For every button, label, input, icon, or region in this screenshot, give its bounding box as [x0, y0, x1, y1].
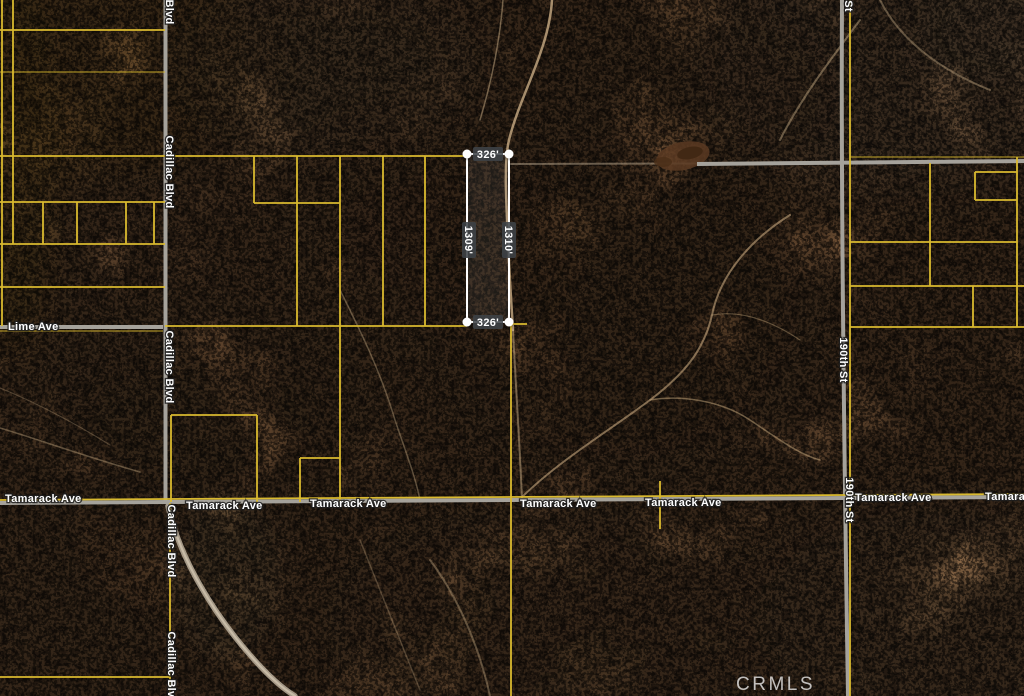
road-label-cadillac-blvd: Cadillac Blvd: [163, 331, 175, 404]
road-label-tamarack-ave: Tamarack Ave: [5, 493, 82, 505]
crmls-watermark: CRMLS: [736, 674, 815, 695]
road-label-tamarack-ave: Tamarack Ave: [186, 500, 263, 512]
dimension-value-right: 1310': [502, 226, 514, 255]
road-label-tamarack-ave: Tamarack Ave: [520, 498, 597, 510]
dimension-value-top: 326': [477, 149, 499, 161]
parcel-corner-handle[interactable]: [505, 150, 514, 159]
road-label-190th-st: 190th St: [843, 477, 855, 522]
road-label-190th-st: 190th St: [837, 337, 849, 382]
road-label-cadillac-blvd: Cadillac Blvd: [163, 136, 175, 209]
dimension-label-right: 1310': [502, 222, 516, 258]
dimension-label-left: 1309': [462, 222, 476, 258]
road-label-tamarack-ave: Tamarack Ave: [855, 492, 932, 504]
dimension-value-left: 1309': [462, 226, 474, 255]
road-label-cadillac-blvd: Cadillac Blvd: [165, 505, 177, 578]
selected-parcel-overlay: 326' 326' 1309' 1310': [462, 147, 516, 329]
road-label-tamarack-ave: Tamarack Ave: [645, 497, 722, 509]
road-label-190th-st-partial: St: [842, 0, 854, 12]
road-label-cadillac-blvd-partial: Blvd: [163, 0, 175, 25]
dimension-label-top: 326': [473, 147, 503, 161]
parcel-corner-handle[interactable]: [463, 318, 472, 327]
terrain-layer: [0, 0, 1024, 696]
dimension-value-bottom: 326': [477, 317, 499, 329]
parcel-corner-handle[interactable]: [463, 150, 472, 159]
road-label-tamarack-ave: Tamarack Ave: [985, 491, 1024, 503]
dimension-label-bottom: 326': [473, 315, 503, 329]
road-label-tamarack-ave: Tamarack Ave: [310, 498, 387, 510]
map-canvas: Blvd Cadillac Blvd Cadillac Blvd Cadilla…: [0, 0, 1024, 696]
road-label-lime-ave: Lime Ave: [8, 321, 59, 333]
satellite-map-view[interactable]: Blvd Cadillac Blvd Cadillac Blvd Cadilla…: [0, 0, 1024, 696]
road-label-cadillac-blvd: Cadillac Blvd: [165, 632, 177, 696]
parcel-corner-handle[interactable]: [505, 318, 514, 327]
